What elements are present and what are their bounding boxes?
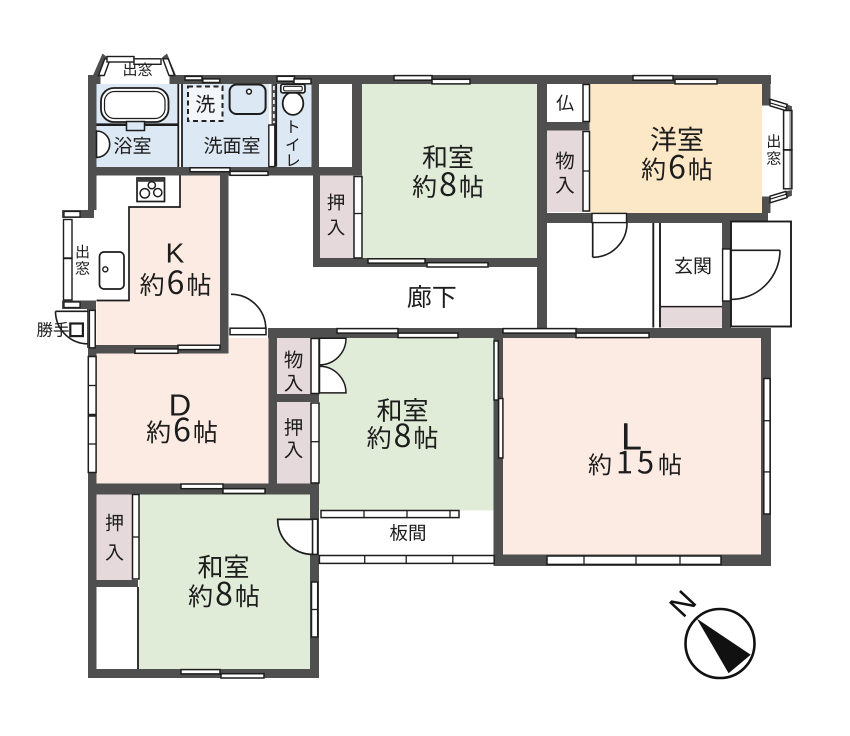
svg-text:K: K (166, 238, 185, 269)
svg-text:D: D (169, 387, 191, 422)
